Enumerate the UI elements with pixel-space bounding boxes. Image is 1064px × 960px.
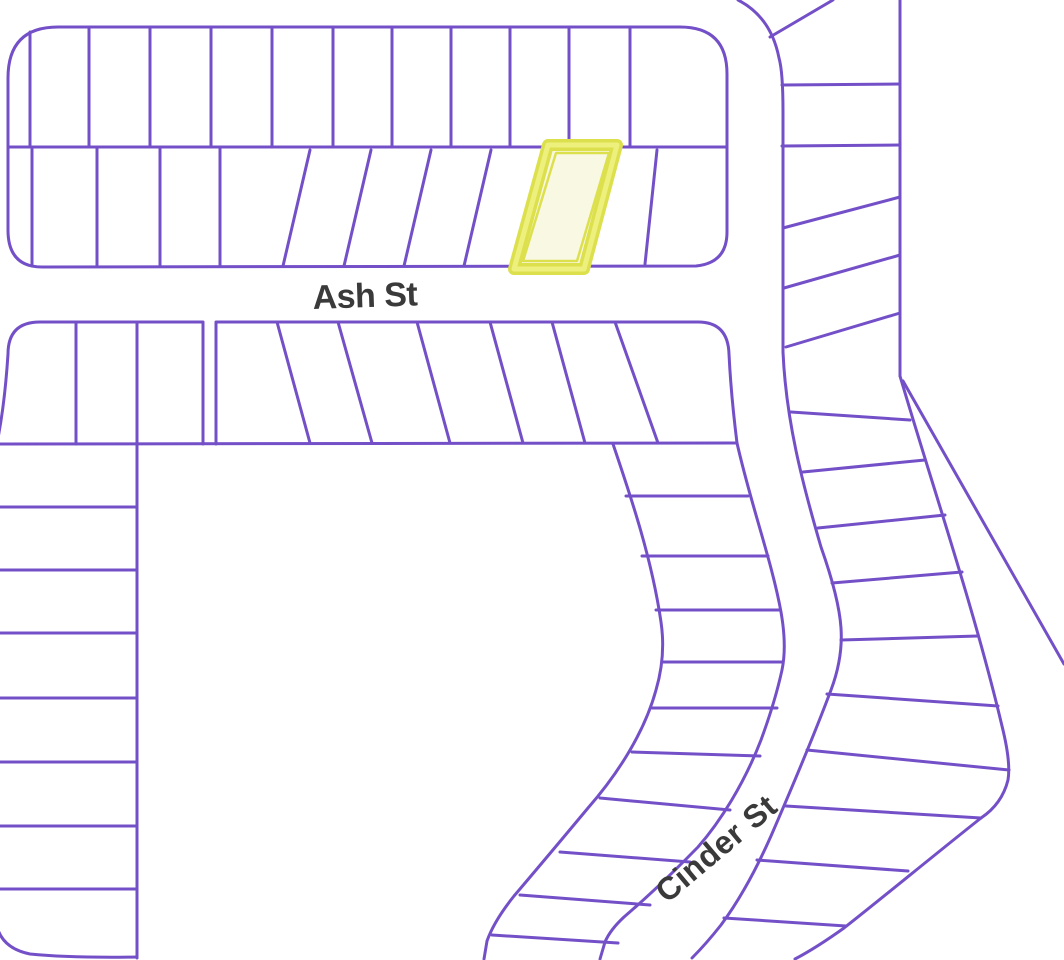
- west-column-bottom-corner: [0, 922, 137, 957]
- south-block-dividers: [76, 322, 658, 444]
- north-block-top-row-dividers: [30, 27, 630, 147]
- west-column-dividers: [0, 507, 137, 889]
- east-wedge-boundary: [903, 381, 1064, 664]
- south-block-bottom-edge: [0, 443, 737, 444]
- parcel-lines: [0, 0, 1064, 959]
- plat-map: Ash St Cinder St: [0, 0, 1064, 960]
- ash-st-label: Ash St: [312, 275, 418, 317]
- west-fan-lot-dividers: [492, 496, 783, 943]
- west-fan-inner-boundary: [484, 444, 663, 959]
- east-fan-lot-dividers: [724, 0, 1009, 926]
- highlighted-lot[interactable]: [514, 145, 617, 269]
- plat-map-stage: Ash St Cinder St: [0, 0, 1064, 960]
- south-block-left-outline: [0, 322, 203, 444]
